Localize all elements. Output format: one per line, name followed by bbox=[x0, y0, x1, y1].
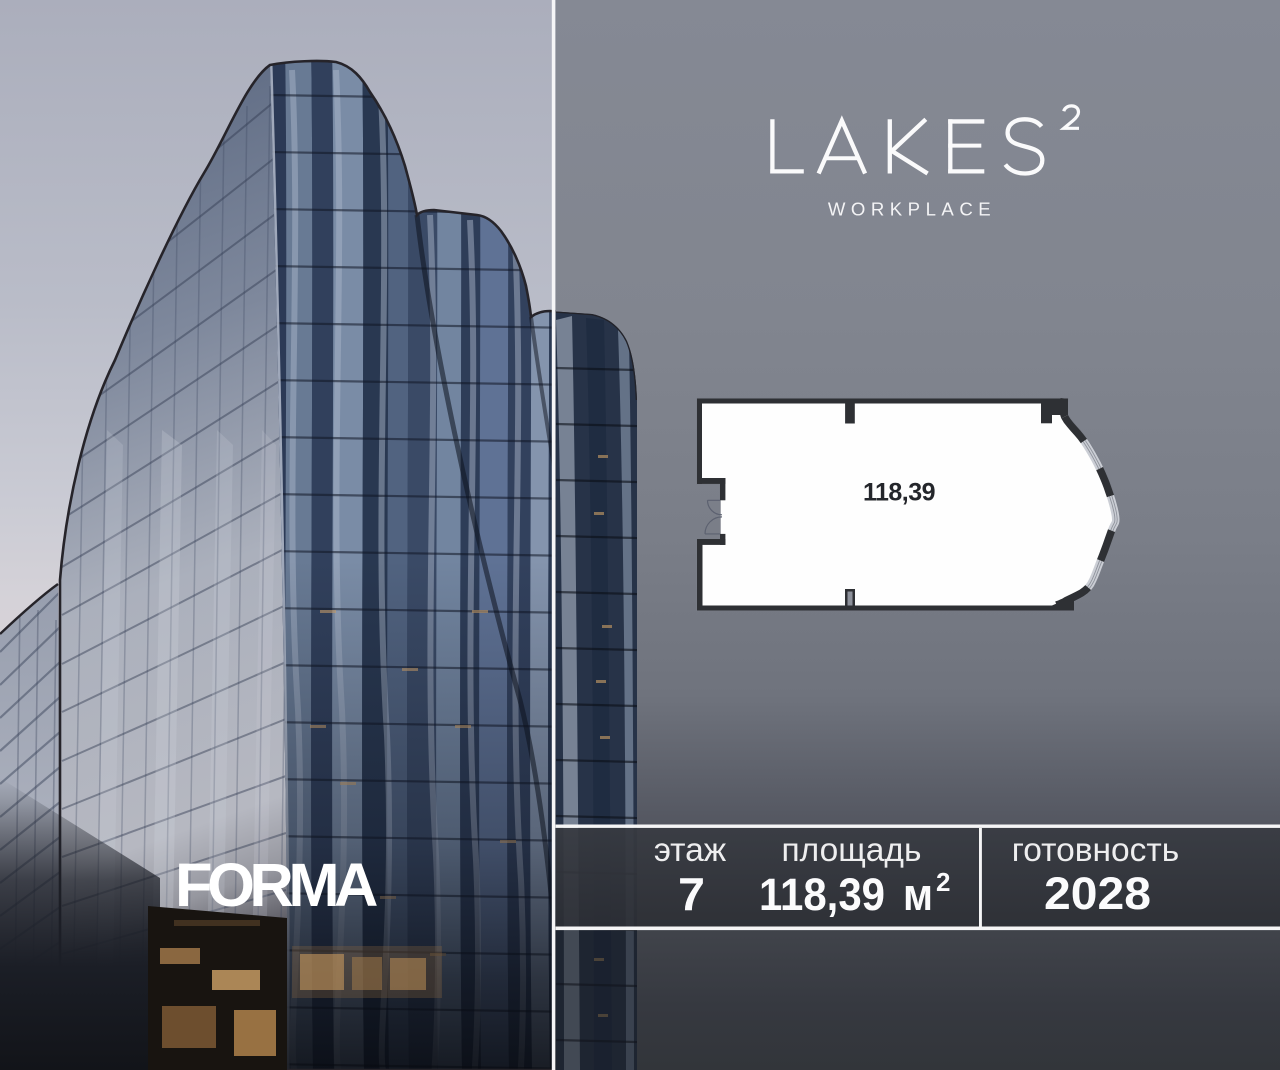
svg-text:2028: 2028 bbox=[1044, 868, 1151, 919]
svg-text:7: 7 bbox=[678, 868, 705, 920]
svg-text:118,39: 118,39 bbox=[759, 869, 885, 920]
svg-text:WORKPLACE: WORKPLACE bbox=[828, 199, 996, 220]
svg-text:FORMA: FORMA bbox=[175, 851, 377, 920]
svg-text:2: 2 bbox=[936, 867, 950, 897]
svg-text:готовность: готовность bbox=[1012, 832, 1179, 869]
svg-text:118,39: 118,39 bbox=[863, 479, 935, 507]
svg-text:м: м bbox=[903, 869, 933, 920]
svg-text:этаж: этаж bbox=[654, 832, 727, 869]
svg-text:площадь: площадь bbox=[782, 832, 922, 869]
